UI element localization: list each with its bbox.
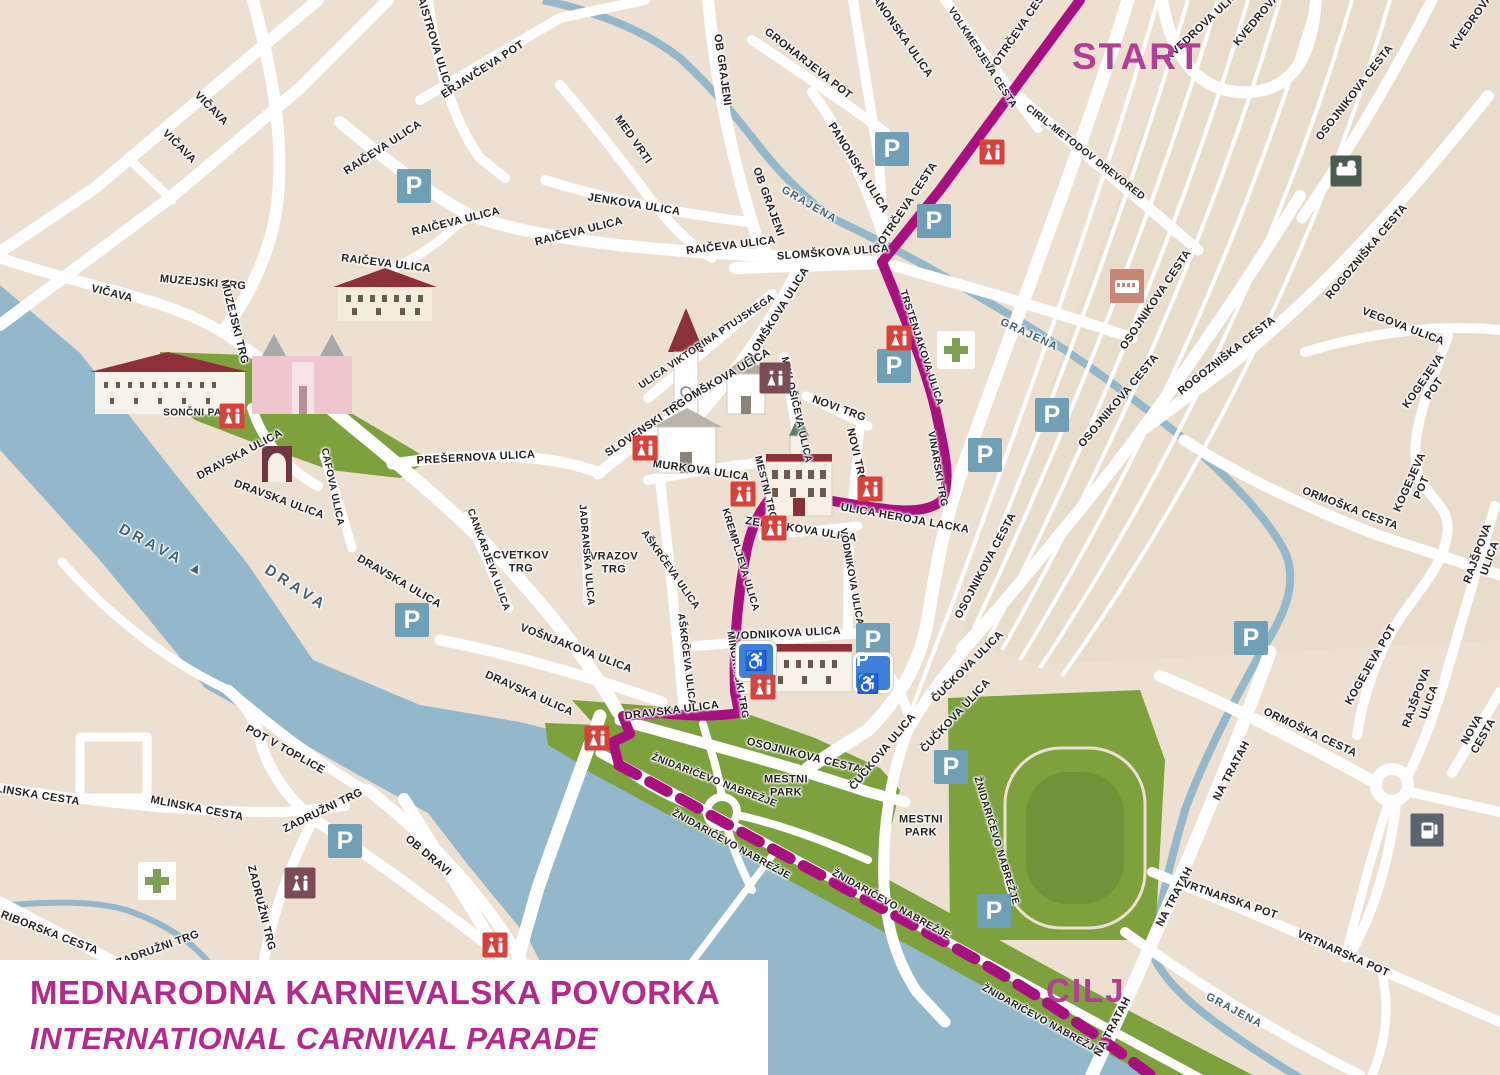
parking-icon: P [968,438,1002,472]
parking-icon: P [875,132,909,166]
city-gate [262,446,292,482]
roundabout [1376,769,1408,801]
pink-church-building [252,334,352,414]
parking-icon: P [328,824,362,858]
wc-icon [751,675,776,700]
map-subtitle: INTERNATIONAL CARNIVAL PARADE [30,1021,768,1057]
wc-icon [285,868,316,899]
wc-icon [858,477,883,502]
parking-icon: P [977,894,1011,928]
street-label: MESTNI PARK [764,773,808,798]
wc-icon [887,326,912,351]
wc-icon [762,516,787,541]
castle-building [333,268,437,321]
wc-icon [220,404,245,429]
street-label: VRAZOV TRG [590,550,638,575]
route-start-label: START [1072,36,1203,78]
parking-disabled-icon: P♿ [853,653,893,693]
wc-icon [760,363,791,394]
wc-icon [585,726,610,751]
wc-icon [980,140,1005,165]
pharmacy-icon [138,862,176,900]
parking-icon: P [395,603,429,637]
wc-icon [731,482,756,507]
bus-icon [1110,269,1144,303]
parking-icon: P [1035,398,1069,432]
parking-icon: P [1234,621,1268,655]
parking-icon: P [877,349,911,383]
title-box: MEDNARODNA KARNEVALSKA POVORKA INTERNATI… [0,960,768,1075]
route-finish-label: CILJ [1046,972,1126,1010]
parking-icon: P [934,750,968,784]
parking-icon: P [917,204,951,238]
street-label: CVETKOV TRG [493,549,549,574]
map-title: MEDNARODNA KARNEVALSKA POVORKA [30,974,768,1012]
city-map: START CILJ MEDNARODNA KARNEVALSKA POVORK… [0,0,1500,1075]
wc-icon [633,436,658,461]
train-icon [1331,156,1362,187]
parking-icon: P [397,169,431,203]
wc-icon [483,933,508,958]
pharmacy-icon [937,331,975,369]
fuel-icon [1411,814,1444,847]
street-label: MESTNI PARK [899,813,943,838]
